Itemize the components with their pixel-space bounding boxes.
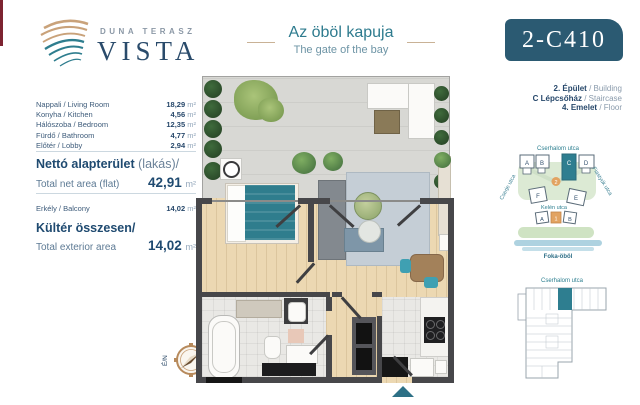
wall-clock <box>223 161 240 178</box>
street-top-label: Cserhalom utca <box>537 146 580 152</box>
floor-line: 4. Emelet / Floor <box>533 103 622 113</box>
net-area-row: Total net area (flat) 42,91 m² <box>36 175 196 190</box>
highlighted-building <box>562 154 576 180</box>
bush <box>204 80 222 98</box>
wall <box>298 198 330 204</box>
page-title: Az öböl kapuja <box>251 24 431 42</box>
room-row: Előtér / Lobby 2,94 m² <box>36 142 196 149</box>
grass-plant <box>258 98 284 122</box>
brand-name-top: DUNA TERASZ <box>100 27 196 36</box>
block-label: 1 <box>554 217 557 223</box>
unit-position-highlight <box>558 288 572 310</box>
bathtub-inner <box>212 321 236 373</box>
block-label: C <box>567 161 572 167</box>
keyplan-street-label: Cserhalom utca <box>541 278 584 284</box>
wave-logo-icon <box>34 16 94 68</box>
closet-shelf <box>356 348 372 370</box>
bathroom-counter <box>262 363 316 376</box>
wall <box>326 297 332 311</box>
bay-label: Foka-öböl <box>544 254 573 260</box>
burner <box>436 331 445 340</box>
outdoor-table <box>374 110 400 134</box>
balcony-row: Erkély / Balcony 14,02 m² <box>36 204 196 213</box>
wall <box>412 377 454 383</box>
burner <box>436 320 445 329</box>
street-left-label: Cserje utca <box>499 173 518 201</box>
dining-chair <box>424 277 438 288</box>
block-label: D <box>584 161 589 167</box>
window <box>206 377 242 383</box>
unit-code-badge: 2-C410 <box>505 19 623 61</box>
page-edge-accent <box>0 0 3 46</box>
bathroom-shelf <box>236 300 282 318</box>
compass-north-label: É/N <box>160 355 169 366</box>
dining-chair <box>400 259 411 273</box>
kitchen-sink <box>435 360 447 374</box>
wall <box>196 198 202 383</box>
brand-name-main: VISTA <box>97 36 199 67</box>
wall <box>448 198 454 383</box>
brochure-page: DUNA TERASZ VISTA Az öböl kapuja The gat… <box>0 0 640 405</box>
sofa <box>318 180 346 260</box>
washing-machine <box>410 358 434 377</box>
side-table <box>358 220 381 243</box>
room-row: Hálószoba / Bedroom 12,35 m² <box>36 121 196 128</box>
phase-number: 2 <box>554 180 557 186</box>
wall <box>202 292 330 297</box>
street-center-label: Kelén utca <box>541 205 568 211</box>
block-label: B <box>540 161 544 167</box>
room-row: Fürdő / Bathroom 4,77 m² <box>36 132 196 139</box>
wall <box>332 292 342 297</box>
bedroom-plant <box>292 152 316 174</box>
building-info: 2. Épület / Building C Lépcsőház / Stair… <box>533 84 622 113</box>
wall <box>308 204 314 262</box>
site-map: Cserhalom utca A B C D F E 2 Cserje utca… <box>496 142 622 260</box>
coffee-table <box>354 192 382 220</box>
console-plant <box>434 152 451 168</box>
sliding-door <box>212 200 298 202</box>
bed-blanket <box>245 185 295 240</box>
bush <box>434 86 449 101</box>
bath-mat <box>288 329 304 343</box>
bush <box>434 108 449 123</box>
block-label: B <box>568 217 572 223</box>
staircase-line: C Lépcsőház / Staircase <box>533 94 622 104</box>
page-subtitle: The gate of the bay <box>251 44 431 56</box>
sliding-door <box>330 200 420 202</box>
floor-key-plan: Cserhalom utca <box>502 272 626 392</box>
title-dash-right <box>407 42 435 43</box>
toilet <box>264 336 281 359</box>
room-list: Nappali / Living Room 18,29 m² Konyha / … <box>36 101 196 152</box>
bush <box>434 130 449 145</box>
exterior-title: Kültér összesen/ <box>36 221 135 235</box>
building-line: 2. Épület / Building <box>533 84 622 94</box>
floor-plan <box>196 76 454 389</box>
title-dash-left <box>247 42 275 43</box>
wall <box>326 335 332 377</box>
bed-pillows <box>227 185 246 242</box>
closet-shelf <box>356 323 372 344</box>
room-row: Konyha / Kitchen 4,56 m² <box>36 111 196 118</box>
entrance-arrow-icon <box>392 386 414 397</box>
burner <box>426 331 435 340</box>
block-label: A <box>540 217 544 223</box>
unit-code: 2-C410 <box>522 27 606 54</box>
block-label: F <box>536 194 540 200</box>
exterior-row: Total exterior area 14,02 m² <box>36 238 196 253</box>
burner <box>426 320 435 329</box>
wall <box>372 292 382 297</box>
living-plant <box>323 152 343 171</box>
divider <box>36 193 196 194</box>
bush <box>204 100 222 118</box>
bush <box>204 120 222 138</box>
block-label: E <box>574 196 578 202</box>
room-row: Nappali / Living Room 18,29 m² <box>36 101 196 108</box>
outdoor-sofa <box>408 83 435 139</box>
net-area-title: Nettó alapterület (lakás)/ <box>36 157 179 171</box>
bush <box>204 140 222 158</box>
block-label: A <box>525 161 529 167</box>
shower-tray <box>288 302 306 322</box>
wall <box>377 316 382 377</box>
divider <box>36 151 196 152</box>
